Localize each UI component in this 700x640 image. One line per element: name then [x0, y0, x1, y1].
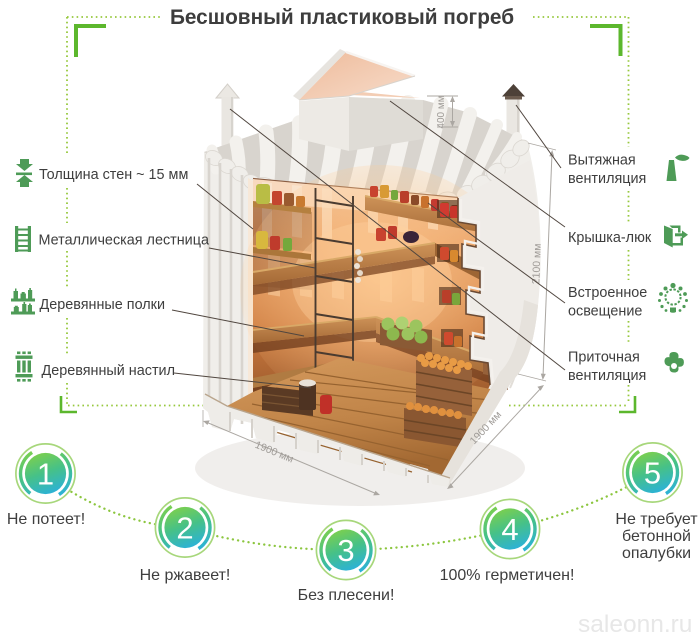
svg-text:вентиляция: вентиляция — [568, 171, 646, 187]
svg-text:бетонной: бетонной — [622, 528, 691, 545]
svg-text:saleonn.ru: saleonn.ru — [578, 611, 692, 638]
svg-text:5: 5 — [644, 456, 661, 491]
svg-text:100% герметичен!: 100% герметичен! — [440, 567, 575, 584]
svg-text:4: 4 — [501, 512, 518, 547]
svg-text:Металлическая лестница: Металлическая лестница — [39, 233, 209, 249]
svg-text:1: 1 — [37, 457, 54, 492]
svg-text:Бесшовный пластиковый погреб: Бесшовный пластиковый погреб — [170, 6, 514, 29]
svg-text:2100 мм: 2100 мм — [530, 243, 543, 284]
svg-text:опалубки: опалубки — [622, 545, 691, 562]
svg-text:Не потеет!: Не потеет! — [7, 511, 85, 528]
svg-text:Деревянные полки: Деревянные полки — [40, 297, 165, 313]
svg-text:Встроенное: Встроенное — [568, 285, 647, 301]
svg-text:Не требует: Не требует — [615, 511, 698, 528]
svg-text:Без плесени!: Без плесени! — [298, 587, 395, 604]
svg-text:Крышка-люк: Крышка-люк — [568, 230, 652, 246]
svg-text:Вытяжная: Вытяжная — [568, 153, 636, 169]
svg-text:Не ржавеет!: Не ржавеет! — [140, 567, 231, 584]
svg-text:освещение: освещение — [568, 304, 642, 320]
svg-text:3: 3 — [337, 533, 354, 568]
svg-text:Приточная: Приточная — [568, 350, 640, 366]
svg-text:Деревянный настил: Деревянный настил — [42, 363, 175, 379]
svg-text:Толщина стен ~ 15 мм: Толщина стен ~ 15 мм — [39, 167, 188, 183]
svg-text:вентиляция: вентиляция — [568, 368, 646, 384]
svg-text:400 мм: 400 мм — [436, 95, 447, 128]
svg-text:2: 2 — [176, 511, 193, 546]
